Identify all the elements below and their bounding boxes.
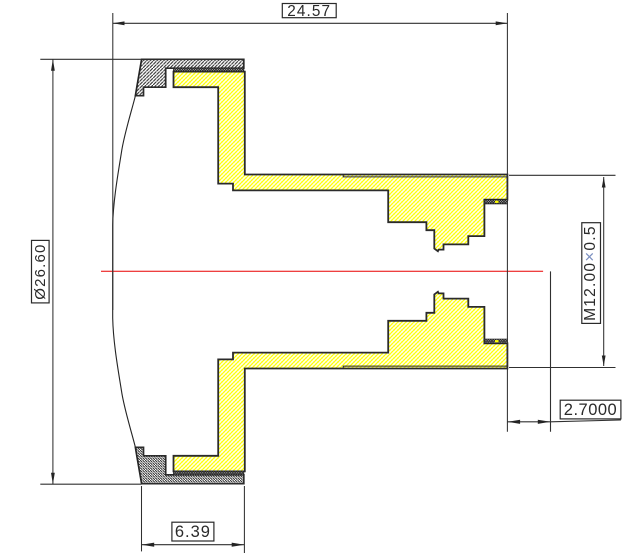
svg-text:6.39: 6.39 xyxy=(175,523,211,541)
svg-text:Ø26.60: Ø26.60 xyxy=(32,243,49,299)
svg-text:M12.00×0.5: M12.00×0.5 xyxy=(580,225,599,321)
svg-text:2.7000: 2.7000 xyxy=(564,401,617,419)
svg-text:24.57: 24.57 xyxy=(287,3,331,20)
